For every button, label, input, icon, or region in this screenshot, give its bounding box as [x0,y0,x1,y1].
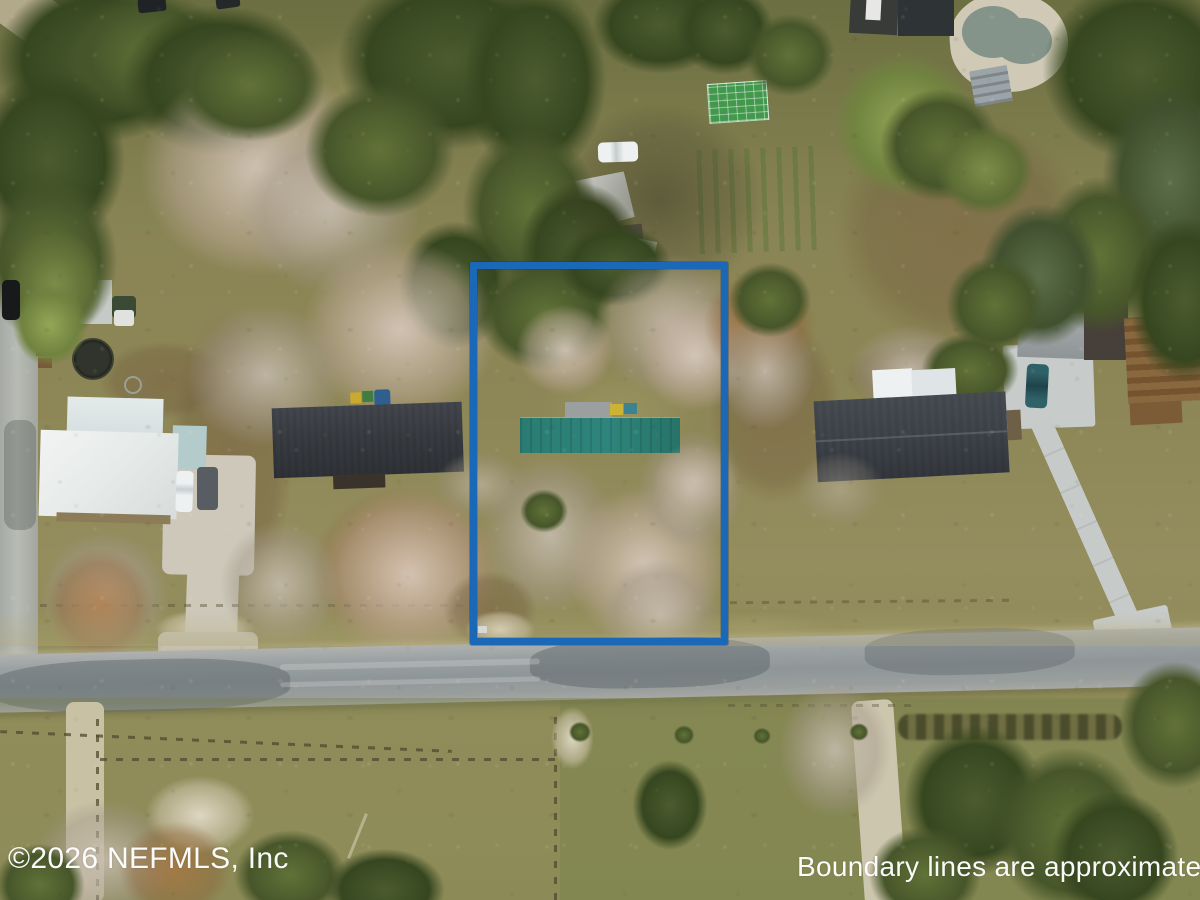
property-boundary-overlay [470,262,728,645]
copyright-watermark: ©2026 NEFMLS, Inc [8,842,289,876]
aerial-photo: ©2026 NEFMLS, Inc Boundary lines are app… [0,0,1200,900]
disclaimer-watermark: Boundary lines are approximate [797,851,1200,883]
